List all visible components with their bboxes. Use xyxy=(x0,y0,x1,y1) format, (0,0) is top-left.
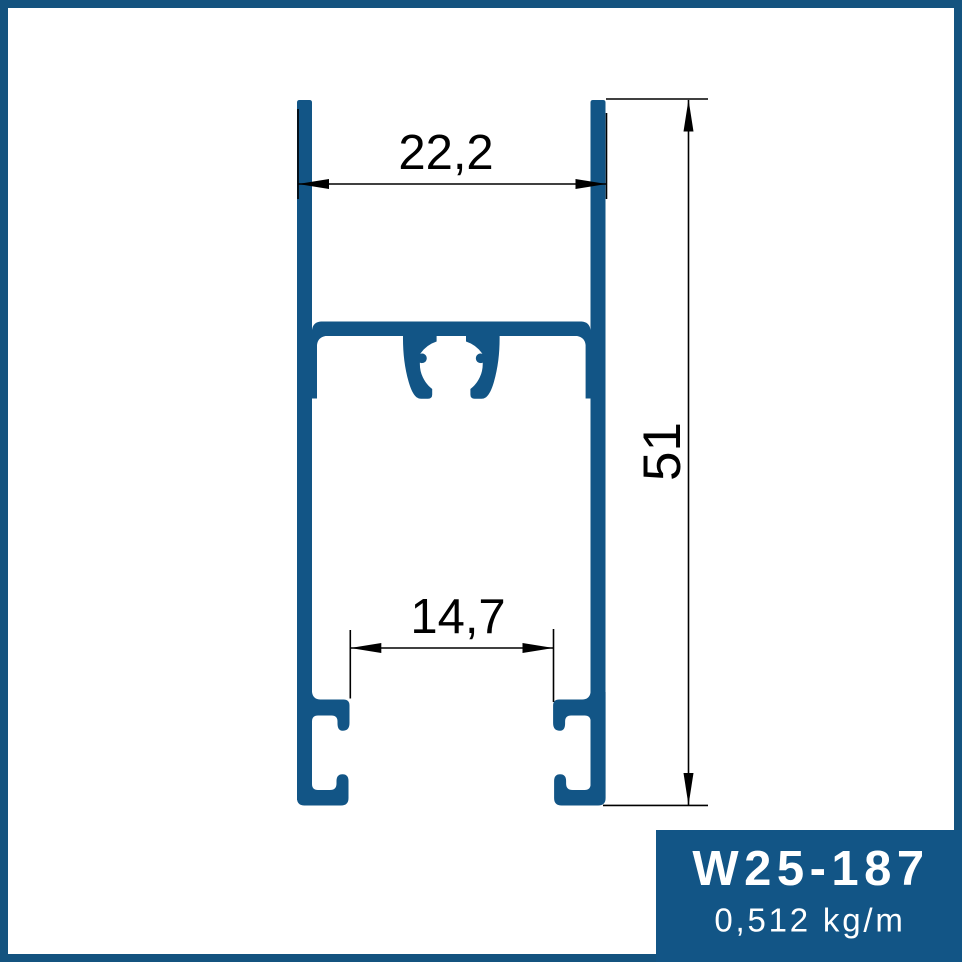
svg-text:14,7: 14,7 xyxy=(410,590,505,644)
svg-text:51: 51 xyxy=(633,422,692,481)
svg-text:0,512 kg/m: 0,512 kg/m xyxy=(714,902,905,939)
svg-text:W25-187: W25-187 xyxy=(692,842,929,896)
svg-text:22,2: 22,2 xyxy=(398,126,493,180)
